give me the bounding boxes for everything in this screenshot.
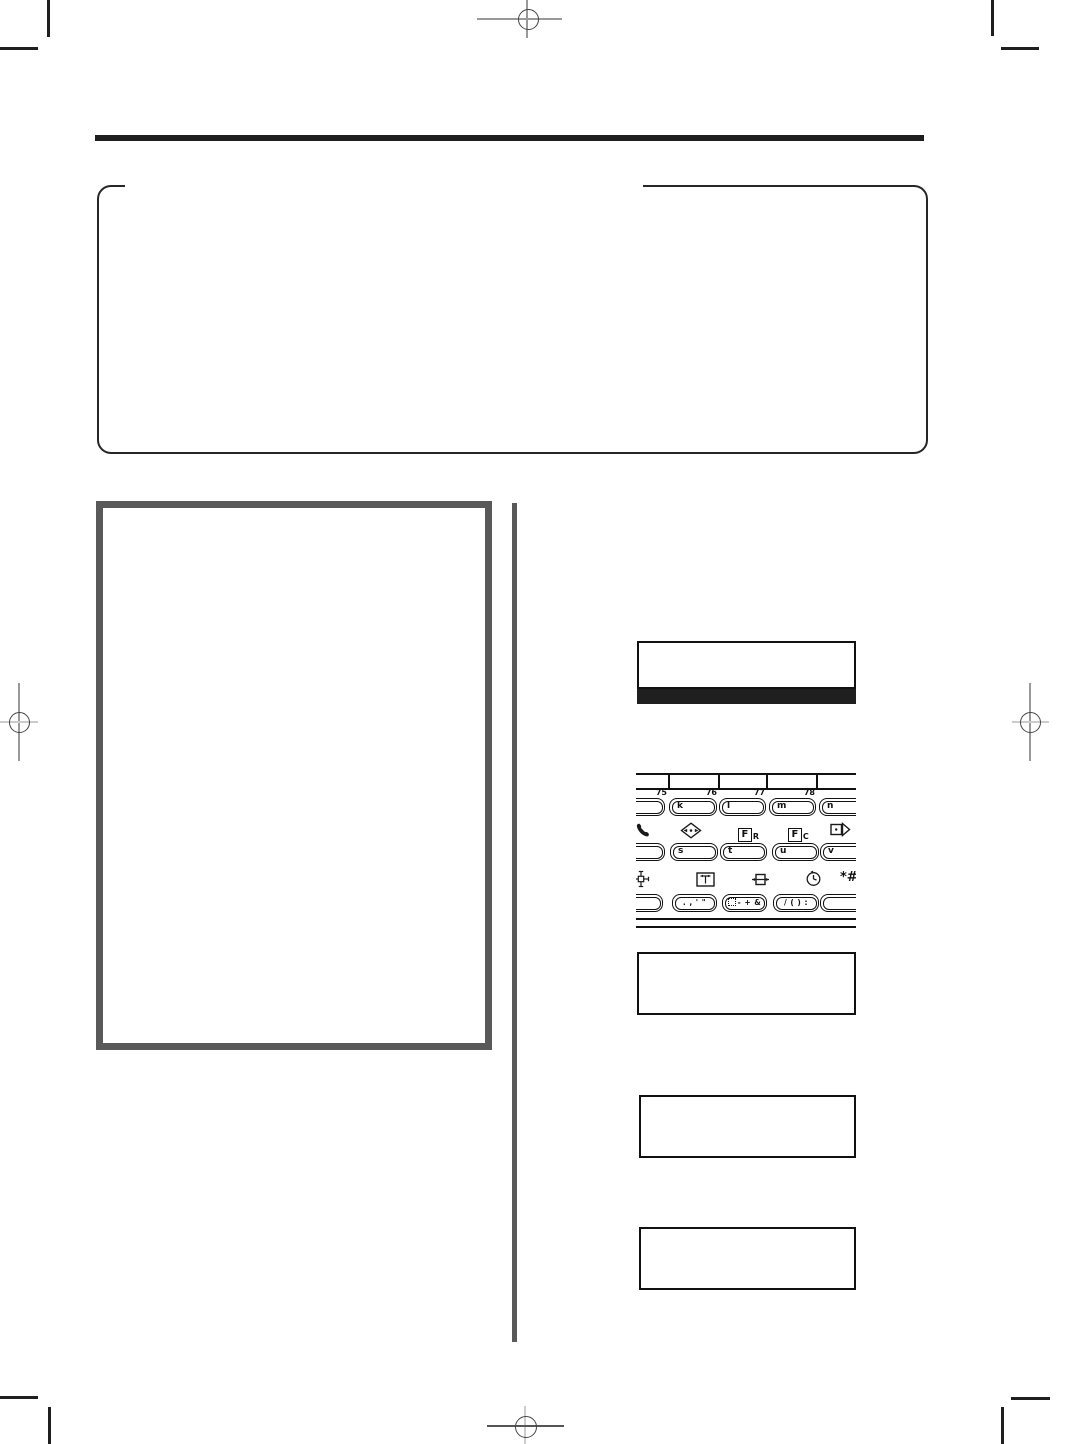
lcd-display-box xyxy=(637,641,856,689)
crop-mark-bottom-left-vertical xyxy=(48,1407,51,1444)
caption-box-1 xyxy=(637,952,856,1015)
crop-mark-top-left-vertical xyxy=(47,0,50,37)
note-box-title-gap xyxy=(125,183,643,189)
key-number-label: 78 xyxy=(798,789,815,797)
keypad-header-tick xyxy=(718,773,720,788)
function-r-icon: FR xyxy=(738,822,759,842)
space-symbol-icon xyxy=(728,898,736,906)
crop-mark-bottom-left-horizontal xyxy=(0,1396,38,1399)
key-v: v xyxy=(820,843,856,861)
page-top-rule xyxy=(95,135,924,141)
clock-timer-icon xyxy=(805,870,822,887)
key-punctuation-1: . , ' " xyxy=(672,894,717,912)
keypad-header-tick xyxy=(668,773,670,788)
keypad-header-bottom-line xyxy=(636,788,856,790)
key-n: n xyxy=(819,798,856,816)
key-punctuation-3: / ( ) : xyxy=(773,894,819,912)
keypad-bottom-line-2 xyxy=(636,926,856,928)
function-c-icon: FC xyxy=(788,822,809,842)
crop-mark-bottom-right-vertical xyxy=(1001,1407,1004,1444)
text-width-icon xyxy=(696,872,715,887)
key-k: k xyxy=(669,798,717,816)
cursor-diamond-icon xyxy=(680,822,702,839)
key-number-label: 75 xyxy=(650,789,667,797)
register-circle-icon xyxy=(9,712,30,733)
crosshair-adjust-icon xyxy=(636,870,650,888)
key-number-label: 76 xyxy=(700,789,717,797)
keypad-diagram: 75 76 77 78 k l m n FR FC xyxy=(636,772,856,930)
note-callout-box xyxy=(97,185,928,454)
crop-mark-bottom-right-horizontal xyxy=(1011,1397,1050,1400)
forward-feed-icon xyxy=(830,821,851,838)
illustration-panel xyxy=(96,501,492,1050)
key-number-label: 77 xyxy=(748,789,765,797)
keypad-bottom-line-1 xyxy=(636,918,856,920)
lcd-display-bar xyxy=(637,689,856,704)
key-m: m xyxy=(769,798,816,816)
crop-mark-top-right-horizontal xyxy=(1001,47,1039,50)
scanned-page: 75 76 77 78 k l m n FR FC xyxy=(0,0,1068,1444)
key-partial-left xyxy=(636,894,663,912)
key-l: l xyxy=(719,798,766,816)
crop-mark-top-right-vertical xyxy=(991,0,994,36)
column-divider xyxy=(512,503,517,1342)
key-partial-left xyxy=(636,843,665,861)
margin-width-icon xyxy=(751,873,770,886)
key-partial-left xyxy=(636,798,665,816)
key-t: t xyxy=(720,843,767,861)
caption-box-2 xyxy=(639,1095,856,1158)
caption-box-3 xyxy=(639,1227,856,1290)
register-circle-icon xyxy=(515,1416,537,1438)
crop-mark-top-left-horizontal xyxy=(0,47,38,50)
key-u: u xyxy=(772,843,819,861)
register-circle-icon xyxy=(1020,712,1041,733)
key-punctuation-2: - + & xyxy=(722,894,767,912)
star-hash-icon: *# xyxy=(840,871,856,885)
keypad-header-tick xyxy=(816,773,818,788)
handset-icon xyxy=(636,821,651,839)
keypad-header-tick xyxy=(766,773,768,788)
register-circle-icon xyxy=(518,9,539,30)
key-partial-right xyxy=(820,894,856,912)
key-s: s xyxy=(670,843,718,861)
